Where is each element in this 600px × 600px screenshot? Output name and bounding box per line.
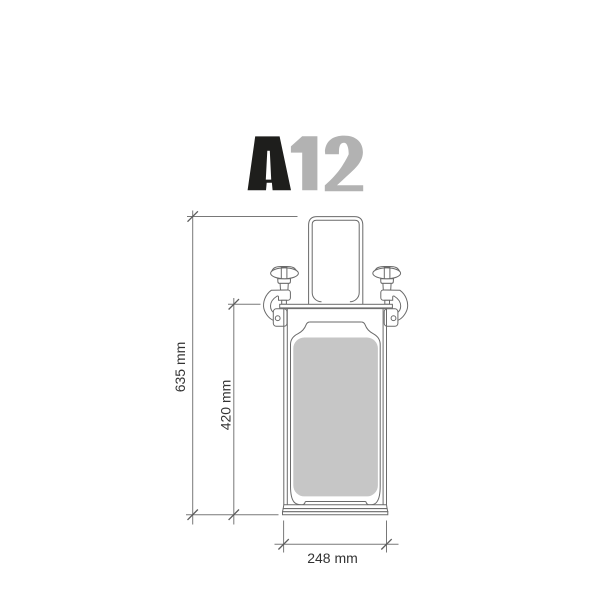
svg-text:248 mm: 248 mm bbox=[307, 550, 358, 566]
svg-text:420 mm: 420 mm bbox=[217, 380, 233, 431]
svg-text:635 mm: 635 mm bbox=[172, 342, 188, 393]
